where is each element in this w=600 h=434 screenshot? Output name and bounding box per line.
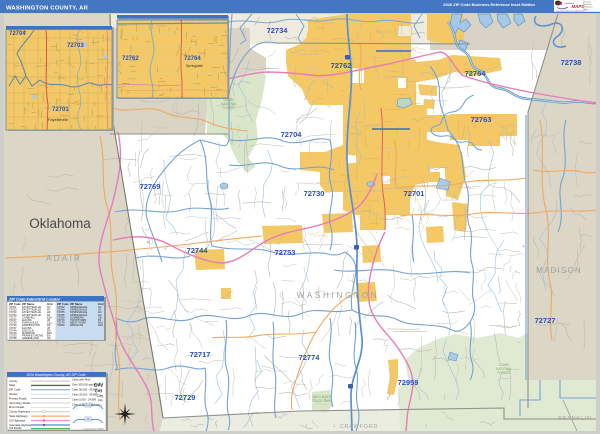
svg-text:ZIP Code: ZIP Code [9, 388, 21, 392]
svg-text:72753: 72753 [275, 248, 296, 257]
svg-text:Cities 5,000 - 24,999: Cities 5,000 - 24,999 [72, 398, 96, 402]
svg-text:WINSLOW: WINSLOW [70, 323, 84, 327]
svg-text:72959: 72959 [57, 323, 65, 327]
svg-text:72769: 72769 [140, 182, 161, 191]
svg-text:2026 ZIP Code Business Referen: 2026 ZIP Code Business Reference Inset E… [443, 2, 535, 7]
svg-text:State: State [9, 383, 16, 387]
svg-text:72717: 72717 [190, 350, 211, 359]
svg-text:tM: tM [557, 1, 563, 6]
svg-text:H9: H9 [47, 336, 51, 340]
svg-text:ZIP Code Index/Grid Locator: ZIP Code Index/Grid Locator [8, 297, 61, 301]
svg-text:FRANKLIN: FRANKLIN [558, 416, 592, 422]
svg-text:Toll Roads: Toll Roads [9, 426, 22, 430]
svg-text:GREENLAND: GREENLAND [22, 336, 39, 340]
svg-text:72704: 72704 [281, 130, 303, 139]
svg-text:Cities 25,000 - 49,999: Cities 25,000 - 49,999 [72, 393, 98, 397]
svg-text:WASHINGTON: WASHINGTON [297, 291, 380, 300]
svg-text:72763: 72763 [471, 115, 492, 124]
svg-text:72764: 72764 [465, 69, 487, 78]
svg-text:72764: 72764 [184, 56, 201, 62]
svg-text:WASHINGTON COUNTY, AR: WASHINGTON COUNTY, AR [6, 6, 89, 12]
svg-text:72959: 72959 [398, 378, 419, 387]
svg-text:State Highways: State Highways [9, 414, 28, 418]
svg-text:72704: 72704 [9, 31, 26, 37]
svg-text:ADAIR: ADAIR [46, 253, 82, 263]
svg-text:STATE PARK: STATE PARK [312, 399, 332, 403]
svg-text:H12: H12 [98, 323, 103, 327]
svg-text:Fayetteville: Fayetteville [48, 117, 69, 122]
svg-text:Oklahoma: Oklahoma [29, 216, 91, 231]
svg-text:72701: 72701 [52, 107, 69, 113]
svg-text:US Highways: US Highways [9, 418, 26, 422]
svg-text:Streets: Streets [9, 392, 18, 396]
svg-text:Minor Roads: Minor Roads [9, 405, 25, 409]
svg-text:72730: 72730 [304, 189, 325, 198]
svg-text:72762: 72762 [331, 61, 352, 70]
svg-text:Maps: Maps [584, 9, 589, 11]
svg-text:MADISON: MADISON [536, 266, 582, 275]
svg-text:72703: 72703 [67, 43, 84, 49]
svg-text:Springdale: Springdale [186, 64, 203, 68]
svg-text:72738: 72738 [561, 58, 582, 67]
svg-text:MAPS: MAPS [572, 4, 585, 9]
svg-text:72762: 72762 [122, 56, 139, 62]
svg-text:72701: 72701 [404, 189, 425, 198]
svg-text:72758: 72758 [9, 336, 17, 340]
svg-text:72744: 72744 [187, 246, 209, 255]
svg-text:72727: 72727 [535, 316, 556, 325]
svg-text:Secondary Roads: Secondary Roads [9, 401, 31, 405]
svg-text:City: City [98, 398, 103, 402]
svg-text:County Highways: County Highways [9, 410, 31, 414]
svg-text:Cities with Texts: Cities with Texts [72, 378, 91, 382]
svg-text:FOREST: FOREST [498, 371, 511, 375]
svg-text:72734: 72734 [267, 26, 289, 35]
svg-text:County: County [9, 379, 18, 383]
svg-text:2026 Washington County, AR ZIP: 2026 Washington County, AR ZIP Code [25, 373, 85, 377]
svg-text:72774: 72774 [299, 353, 321, 362]
svg-text:www.marketmaps.com 1-888-434-6: www.marketmaps.com 1-888-434-6277 [556, 9, 586, 12]
svg-text:412: 412 [86, 403, 91, 407]
svg-text:Primary Roads: Primary Roads [9, 396, 27, 400]
svg-text:CRAWFORD: CRAWFORD [340, 424, 379, 430]
svg-text:Copyright MarketMAPS: Copyright MarketMAPS [83, 427, 105, 430]
svg-text:72729: 72729 [175, 393, 196, 402]
svg-text:FOREST: FOREST [223, 106, 236, 110]
